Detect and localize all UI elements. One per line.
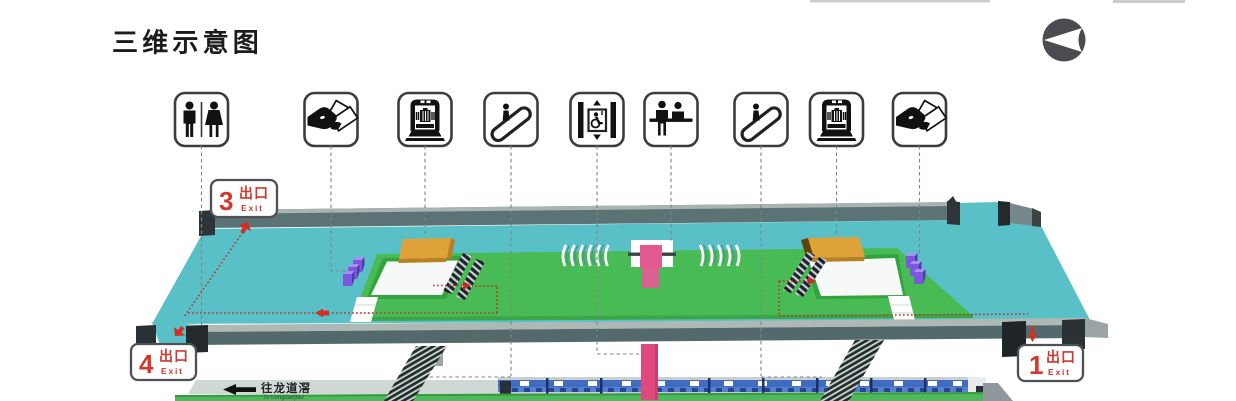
svg-text:出口: 出口 — [239, 185, 269, 201]
svg-text:Exit: Exit — [161, 366, 184, 376]
svg-text:Exit: Exit — [241, 203, 264, 213]
svg-text:1: 1 — [1029, 350, 1043, 380]
svg-text:To Longdaojiao: To Longdaojiao — [263, 395, 304, 401]
svg-text:4: 4 — [139, 349, 154, 379]
svg-text:三维示意图: 三维示意图 — [112, 28, 263, 58]
svg-text:出口: 出口 — [1046, 349, 1076, 365]
svg-text:Exit: Exit — [1048, 367, 1071, 377]
svg-text:往龙道滘: 往龙道滘 — [261, 381, 311, 395]
svg-text:出口: 出口 — [159, 348, 189, 364]
svg-text:3: 3 — [219, 186, 233, 216]
